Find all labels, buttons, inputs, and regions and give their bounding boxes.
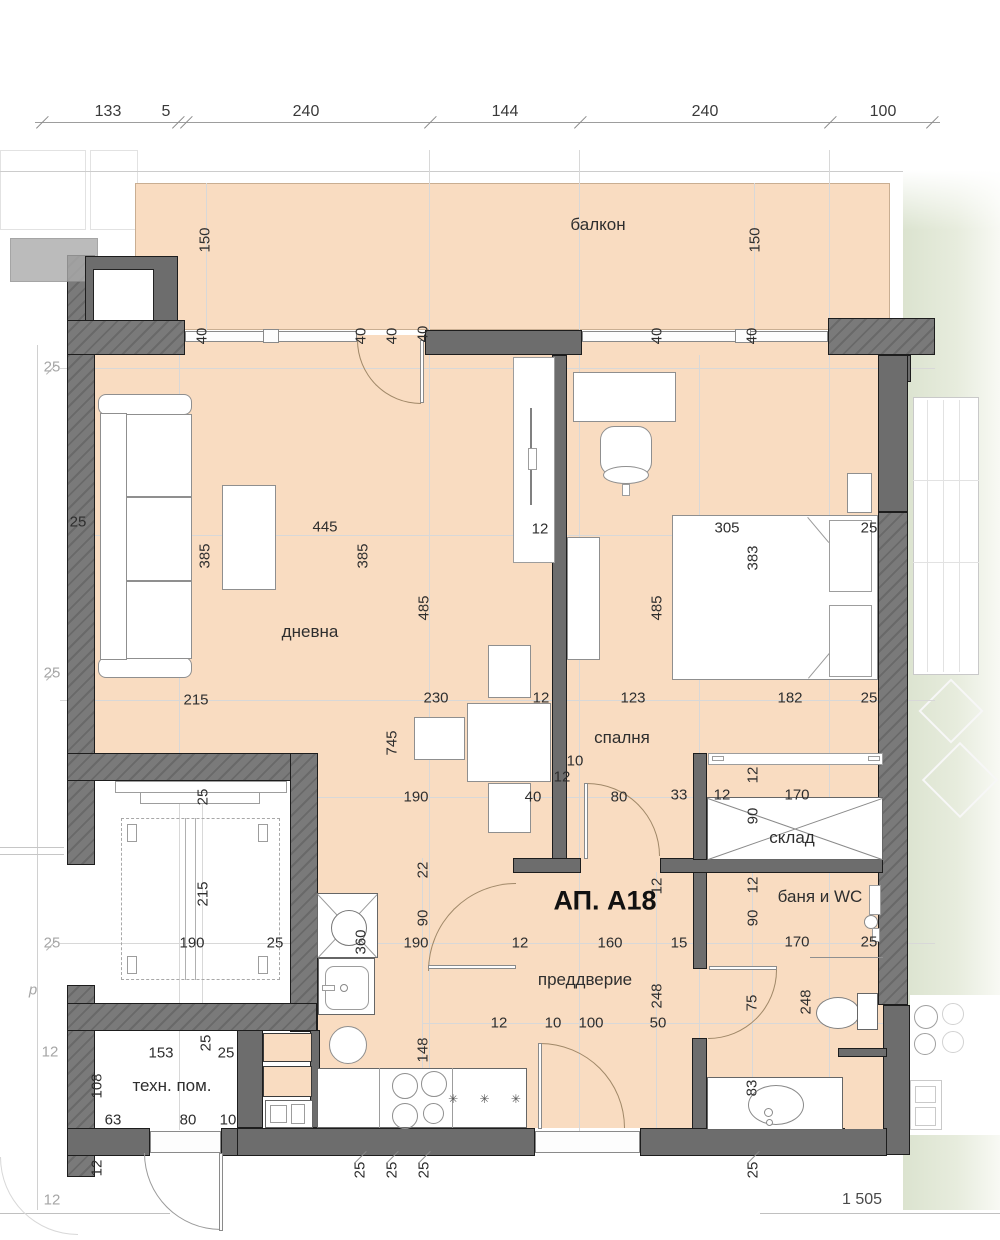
room-label-5: баня и WC (778, 887, 863, 907)
burner-1 (392, 1073, 418, 1099)
balcony-floor (135, 183, 890, 330)
left-dim-line (37, 345, 38, 1210)
tech-door-arc (144, 1153, 221, 1230)
dim-label: 215 (183, 692, 208, 709)
dim-label: 12 (714, 787, 731, 804)
dim-label-top: 240 (293, 103, 320, 121)
dim-label: 25 (44, 665, 61, 682)
kitchen-tap (322, 985, 335, 991)
burner-4 (423, 1103, 444, 1124)
annotation: p (29, 982, 37, 999)
dim-label-top: 144 (492, 103, 519, 121)
elevator-rail-a (185, 818, 186, 980)
dim-label: 148 (415, 1037, 432, 1062)
dim-label: 248 (798, 989, 815, 1014)
n-fridge-a (915, 1086, 936, 1103)
wall-right-solid (878, 355, 908, 512)
dim-label: 40 (649, 328, 666, 345)
dim-label: 12 (89, 1160, 106, 1177)
dim-label: 80 (611, 789, 628, 806)
bath-tap-a (764, 1108, 773, 1117)
office-chair-stem (622, 484, 630, 496)
dim-label: 83 (744, 1080, 761, 1097)
coffee-table (222, 485, 276, 590)
top-dim-line (35, 122, 940, 123)
dim-label: 25 (70, 514, 87, 531)
dim-label: 108 (89, 1073, 106, 1098)
closet-handle-a (712, 756, 724, 761)
dim-label: 230 (423, 690, 448, 707)
dining-chair-top (488, 645, 531, 698)
dim-label: 25 (44, 359, 61, 376)
toilet-bowl (816, 997, 860, 1029)
desk (573, 372, 676, 422)
pier-balcony-left (67, 320, 185, 355)
elevator-pad-3 (127, 956, 137, 974)
wall-corridor-top (67, 753, 317, 781)
neighbor-win-l1 (927, 400, 928, 672)
wall-storage-left (693, 753, 707, 860)
dim-label: 10 (220, 1112, 237, 1129)
dim-label: 485 (416, 595, 433, 620)
dim-label: 445 (312, 519, 337, 536)
dim-label: 160 (597, 935, 622, 952)
dim-label: 40 (353, 328, 370, 345)
window-bedroom (582, 331, 828, 342)
dim-label: 25 (861, 690, 878, 707)
dim-label: 385 (355, 543, 372, 568)
dim-label: 190 (403, 935, 428, 952)
bottom-line-right (760, 1213, 1000, 1214)
dim-label: 360 (353, 929, 370, 954)
dim-label: 25 (861, 520, 878, 537)
sink-drain (340, 984, 348, 992)
wall-tech-bottom-stub (221, 1128, 238, 1156)
dim-label: 90 (415, 910, 432, 927)
dim-label: 25 (218, 1045, 235, 1062)
dim-label: 25 (267, 935, 284, 952)
fridge-inner-a (270, 1105, 287, 1123)
dim-label: 25 (384, 1162, 401, 1179)
room-label-7: техн. пом. (132, 1076, 211, 1096)
dim-label: 10 (567, 753, 584, 770)
dim-label: 385 (197, 543, 214, 568)
wall-bottom-right (640, 1128, 887, 1156)
sofa-cushion-2 (126, 497, 192, 581)
room-label-4: склад (769, 828, 814, 848)
dim-label: 40 (525, 789, 542, 806)
dim-label: 90 (745, 808, 762, 825)
pillow-bottom (829, 605, 872, 677)
tech-threshold (150, 1131, 221, 1153)
kitchen-small-circle (329, 1026, 367, 1064)
dim-label: 12 (533, 690, 550, 707)
dim-label: 12 (745, 767, 762, 784)
bedroom-door-leaf (584, 783, 588, 859)
dim-label: 50 (650, 1015, 667, 1032)
dining-chair-left (414, 717, 465, 760)
dim-label: 12 (745, 877, 762, 894)
wall-tech-bottom (67, 1128, 150, 1156)
dim-label: 80 (180, 1112, 197, 1129)
wall-hall-top (513, 858, 581, 873)
dim-label: 22 (415, 862, 432, 879)
tv-stand (528, 448, 537, 470)
dim-label: 40 (744, 328, 761, 345)
stair-line-b (0, 854, 64, 855)
elevator-pad-4 (258, 956, 268, 974)
n-burner-2 (942, 1003, 964, 1025)
dim-label: 15 (671, 935, 688, 952)
room-label-2: дневна (282, 622, 339, 642)
wall-niche-top (838, 1048, 887, 1057)
dim-label: 182 (777, 690, 802, 707)
dim-label: 63 (105, 1112, 122, 1129)
wall-elevator-right (290, 753, 318, 1032)
dim-label: 12 (42, 1044, 59, 1061)
entry-door-leaf (538, 1043, 542, 1129)
dim-label: 150 (747, 227, 764, 252)
window-mullion-a (263, 329, 279, 343)
grid-v7 (754, 183, 755, 330)
dim-label: 25 (861, 934, 878, 951)
grid-v5 (699, 355, 700, 1130)
sofa-backrest (100, 413, 127, 660)
grid-v2 (429, 150, 430, 1150)
neighbor-green-fade (903, 170, 1000, 230)
outside-door-arc (0, 1157, 78, 1235)
dining-table (467, 703, 551, 782)
dim-label-top: 100 (870, 103, 897, 121)
dim-label: 90 (745, 910, 762, 927)
dim-label: 248 (649, 983, 666, 1008)
pier-balcony-right (828, 318, 935, 355)
dim-label: 745 (384, 730, 401, 755)
dim-label: 123 (620, 690, 645, 707)
neighbor-win-l5 (913, 562, 979, 563)
dim-label: 40 (384, 328, 401, 345)
elevator-pad-2 (258, 824, 268, 842)
dim-label: 170 (784, 934, 809, 951)
ghost-box-a (0, 150, 86, 230)
neighbor-win-l4 (913, 480, 979, 481)
dim-label: 25 (44, 935, 61, 952)
wall-bath-left-lower (692, 1038, 707, 1130)
n-burner-3 (914, 1033, 936, 1055)
closet-front (708, 753, 883, 765)
dim-label: 25 (352, 1162, 369, 1179)
stair-line-a (0, 847, 64, 848)
dim-label: 12 (44, 1192, 61, 1209)
burner-2 (421, 1071, 447, 1097)
neighbor-window (913, 397, 979, 675)
room-label-1: балкон (570, 215, 625, 235)
dim-label: 190 (403, 789, 428, 806)
dim-label: 150 (197, 227, 214, 252)
wall-tech-right (237, 1030, 263, 1128)
grid-v6 (206, 183, 207, 330)
kitchen-door-leaf (428, 965, 516, 969)
dim-label: 40 (415, 326, 432, 343)
dim-label: 25 (198, 1035, 215, 1052)
sofa-armrest-top (98, 394, 192, 415)
dim-label: 383 (745, 545, 762, 570)
closet-handle-b (868, 756, 880, 761)
wall-bedroom-south (660, 858, 883, 873)
dim-label-top: 5 (162, 103, 171, 121)
annotation: ✳ ✳ ✳ (448, 1092, 530, 1106)
burner-3 (392, 1103, 418, 1129)
dim-label: 485 (649, 595, 666, 620)
sofa-cushion-3 (126, 581, 192, 659)
shower-knob (864, 915, 878, 929)
office-chair-base (603, 466, 649, 484)
cabinet-a (263, 1033, 312, 1062)
dim-label: 25 (416, 1162, 433, 1179)
wardrobe (567, 537, 600, 660)
dim-label: 190 (179, 935, 204, 952)
grid-h1 (60, 368, 935, 369)
wall-bottom-kitchen (228, 1128, 535, 1156)
niche-floor (845, 1057, 883, 1129)
ghost-box-b (90, 150, 138, 230)
dim-label: 25 (195, 789, 212, 806)
tech-door-leaf (219, 1153, 223, 1231)
bath-door-leaf (709, 966, 777, 970)
balcony-door-leaf (420, 340, 424, 403)
n-burner-4 (942, 1031, 964, 1053)
pier-balcony-center (425, 330, 582, 355)
dim-label: 10 (545, 1015, 562, 1032)
toilet-tank (857, 993, 878, 1030)
dim-label-top: 133 (95, 103, 122, 121)
entry-threshold (535, 1131, 640, 1153)
outer-line-top (0, 171, 940, 172)
sofa-armrest-bottom (98, 657, 192, 678)
fridge-inner-b (291, 1104, 305, 1124)
drawing-number: 1 505 (842, 1191, 882, 1209)
cabinet-b (263, 1066, 312, 1097)
dim-label: 40 (194, 328, 211, 345)
room-label-6: преддверие (538, 970, 632, 990)
dim-label: 33 (671, 787, 688, 804)
dim-label: 75 (744, 995, 761, 1012)
dim-label-top: 240 (692, 103, 719, 121)
wall-tech-top (67, 1003, 317, 1031)
floor-plan: 1335240144240100150150404040404040252544… (0, 0, 1000, 1240)
apartment-title: АП. А18 (553, 886, 656, 917)
n-fridge-b (915, 1107, 936, 1126)
shower-head (869, 885, 881, 915)
bath-shelf-line (810, 957, 883, 958)
neighbor-win-l2 (943, 400, 944, 672)
dim-label: 170 (784, 787, 809, 804)
dim-label: 12 (554, 769, 571, 786)
dim-label: 12 (532, 521, 549, 538)
neighbor-win-l3 (959, 400, 960, 672)
dim-label: 305 (714, 520, 739, 537)
wall-bath-left-upper (693, 872, 707, 969)
nightstand (847, 473, 872, 513)
dim-label: 100 (578, 1015, 603, 1032)
wall-right-lower (883, 1005, 910, 1155)
dim-label: 25 (745, 1162, 762, 1179)
dim-label: 12 (512, 935, 529, 952)
dim-label: 12 (491, 1015, 508, 1032)
bath-tap-b (766, 1119, 773, 1126)
sofa-cushion-1 (126, 414, 192, 497)
counter-div-a (379, 1068, 380, 1128)
n-burner-1 (914, 1005, 938, 1029)
dim-label: 215 (195, 881, 212, 906)
elevator-pad-1 (127, 824, 137, 842)
window-shaft-opening (93, 269, 154, 323)
room-label-3: спалня (594, 728, 650, 748)
dim-label: 153 (148, 1045, 173, 1062)
